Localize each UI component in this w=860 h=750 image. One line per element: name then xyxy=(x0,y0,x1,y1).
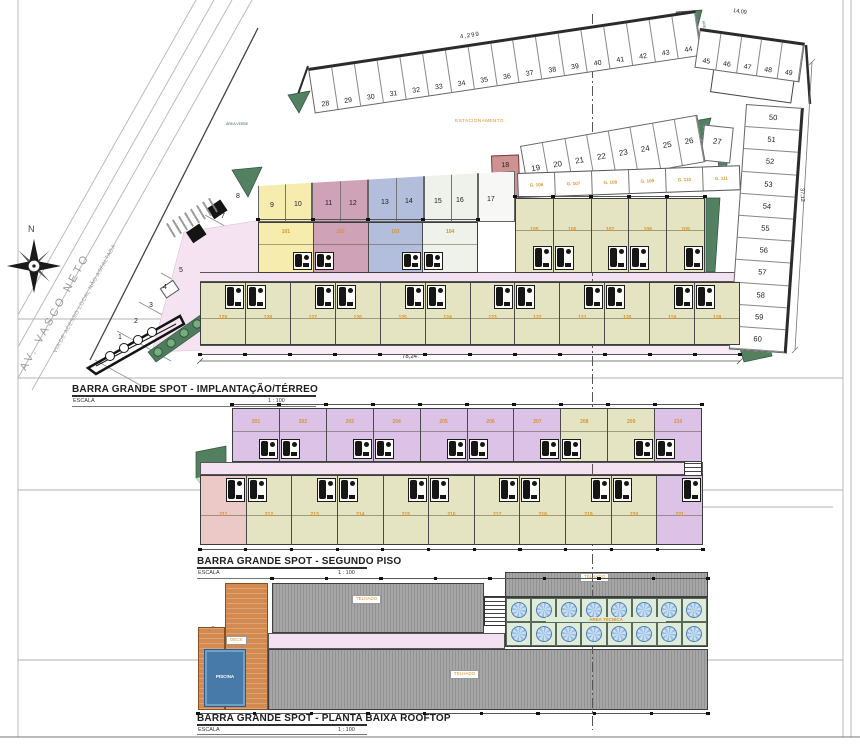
tick xyxy=(310,712,313,715)
tick xyxy=(427,548,430,551)
lot-10: 10 xyxy=(294,201,302,208)
tick xyxy=(423,353,426,356)
unit-number: 105 xyxy=(516,227,553,233)
tick xyxy=(476,218,479,221)
tick xyxy=(603,353,606,356)
tick xyxy=(627,195,630,198)
tick xyxy=(473,548,476,551)
lot-5: 5 xyxy=(179,267,183,274)
dim-ticks xyxy=(232,404,702,405)
bed-icon xyxy=(608,287,615,306)
tick xyxy=(593,712,596,715)
unit-201: 201 xyxy=(233,409,279,461)
fixture-icon xyxy=(685,288,690,293)
wall-line xyxy=(655,431,701,432)
tick xyxy=(371,403,374,406)
furniture-icon xyxy=(606,285,625,309)
bed-icon xyxy=(295,254,302,267)
roof-label-2: TELHADO xyxy=(450,670,479,679)
fan-icon xyxy=(661,626,677,642)
garage-cell: G. 110 xyxy=(665,168,703,192)
furniture-icon xyxy=(248,478,267,502)
fixture-icon xyxy=(693,481,698,486)
unit-212: 212 xyxy=(246,476,292,544)
fixture-icon xyxy=(667,442,672,447)
bed-icon xyxy=(586,287,593,306)
unit-127: 127 xyxy=(290,283,335,344)
plan3-title: BARRA GRANDE SPOT - PLANTA BAIXA ROOFTOP xyxy=(197,713,451,724)
fixture-icon xyxy=(550,452,556,456)
tick xyxy=(650,712,653,715)
furniture-icon xyxy=(674,285,693,309)
tick xyxy=(700,403,703,406)
unit-208: 208 xyxy=(560,409,607,461)
unit-121: 121 xyxy=(559,283,604,344)
furniture-icon xyxy=(555,246,574,270)
bed-icon xyxy=(426,254,433,267)
unit-number: 103 xyxy=(369,229,423,235)
unit-number: 204 xyxy=(374,419,420,425)
unit-218: 218 xyxy=(519,476,565,544)
bed-icon xyxy=(523,480,530,499)
unit-102: 102 xyxy=(313,223,368,272)
unit-number: 119 xyxy=(650,315,694,321)
unit-125: 125 xyxy=(380,283,425,344)
unit-number: 101 xyxy=(259,229,313,235)
lot-27: 27 xyxy=(700,125,734,164)
unit-number: 211 xyxy=(201,512,246,518)
units-second-lower: 211212213214215216217218219220221 xyxy=(200,475,703,545)
compass-rose xyxy=(6,238,62,294)
garage-label: G. 108 xyxy=(604,180,618,185)
bed-icon xyxy=(684,480,691,499)
lot-number: 47 xyxy=(743,63,752,74)
tick xyxy=(421,218,424,221)
fixture-icon xyxy=(291,452,297,456)
lot-16: 16 xyxy=(456,197,464,204)
drawing-sheet: N AV. VASCO NETO VIA DE ACESSO LOCAL NÃO… xyxy=(0,0,860,750)
green-area-label-1: ÁREA VERDE xyxy=(226,122,248,126)
tick xyxy=(366,712,369,715)
unit-124: 124 xyxy=(425,283,470,344)
furniture-icon xyxy=(281,439,300,459)
bed-icon xyxy=(432,480,439,499)
lot-number: 30 xyxy=(367,93,376,104)
furniture-icon xyxy=(259,439,278,459)
lot-block xyxy=(312,171,368,222)
lot-number: 50 xyxy=(769,113,778,123)
tick xyxy=(513,195,516,198)
unit-209: 209 xyxy=(607,409,654,461)
unit-number: 124 xyxy=(426,315,470,321)
tick xyxy=(543,577,546,580)
unit-107: 107 xyxy=(591,199,629,272)
furniture-icon xyxy=(499,478,518,502)
fixture-icon xyxy=(364,442,369,447)
fixture-icon xyxy=(510,481,515,486)
fixture-icon xyxy=(303,263,309,267)
fixture-icon xyxy=(292,442,297,447)
fixture-icon xyxy=(412,263,418,267)
tick xyxy=(324,403,327,406)
wall-line xyxy=(608,431,654,432)
fixture-icon xyxy=(258,288,263,293)
lot-number: 59 xyxy=(755,312,764,322)
unit-number: 104 xyxy=(423,229,477,235)
lot-number: 38 xyxy=(548,66,557,77)
furniture-icon xyxy=(521,478,540,502)
fixture-icon xyxy=(694,263,700,267)
tick xyxy=(366,218,369,221)
stair-rooftop xyxy=(484,596,506,626)
bed-icon xyxy=(496,287,503,306)
tick xyxy=(738,353,741,356)
fixture-icon xyxy=(258,495,264,499)
furniture-icon xyxy=(430,478,449,502)
lot-7: 7 xyxy=(221,213,225,220)
unit-number: 208 xyxy=(561,419,607,425)
lot-13: 13 xyxy=(381,199,389,206)
garage-label: G. 111 xyxy=(715,176,728,181)
furniture-icon xyxy=(696,285,715,309)
furniture-icon xyxy=(516,285,535,309)
unit-number: 102 xyxy=(314,229,368,235)
tick xyxy=(551,195,554,198)
unit-214: 214 xyxy=(337,476,383,544)
unit-number: 107 xyxy=(592,227,629,233)
lot-number: 48 xyxy=(763,66,772,77)
lot-number: 31 xyxy=(389,90,398,101)
condenser-cell xyxy=(632,622,657,646)
dimension-line-bottom xyxy=(197,358,743,364)
furniture-icon xyxy=(225,285,244,309)
wall-line xyxy=(259,244,313,245)
compass-north-label: N xyxy=(28,224,35,234)
parking-area-label: ESTACIONAMENTO xyxy=(455,119,504,124)
fixture-icon xyxy=(544,249,549,254)
fixture-icon xyxy=(326,255,331,260)
wall-line xyxy=(423,244,477,245)
wall-line xyxy=(468,431,514,432)
condenser-cell xyxy=(657,622,682,646)
bed-icon xyxy=(317,287,324,306)
fan-icon xyxy=(611,626,627,642)
boundary-connector xyxy=(806,45,810,104)
bed-icon xyxy=(632,248,639,267)
bed-icon xyxy=(564,441,571,456)
lot-12: 12 xyxy=(349,200,357,207)
fixture-icon xyxy=(235,302,241,306)
unit-219: 219 xyxy=(565,476,611,544)
fixture-icon xyxy=(257,302,263,306)
fixture-icon xyxy=(347,302,353,306)
tick xyxy=(480,712,483,715)
tick xyxy=(488,577,491,580)
unit-number: 207 xyxy=(514,419,560,425)
fixture-icon xyxy=(623,495,629,499)
unit-128: 128 xyxy=(245,283,290,344)
bed-icon xyxy=(557,248,564,267)
unit-202: 202 xyxy=(279,409,326,461)
condenser-cell xyxy=(682,622,707,646)
tick xyxy=(288,353,291,356)
tick xyxy=(244,548,247,551)
tick xyxy=(701,548,704,551)
tick xyxy=(665,195,668,198)
tick xyxy=(243,353,246,356)
unit-number: 219 xyxy=(566,512,611,518)
tick xyxy=(559,403,562,406)
lot-1: 1 xyxy=(118,334,122,341)
unit-213: 213 xyxy=(291,476,337,544)
plan1-escala-label: ESCALA xyxy=(73,398,95,404)
fixture-icon xyxy=(415,302,421,306)
fixture-icon xyxy=(327,495,333,499)
unit-101: 101 xyxy=(259,223,313,272)
wall-line xyxy=(374,431,420,432)
wall-line xyxy=(561,431,607,432)
fixture-icon xyxy=(440,495,446,499)
unit-211: 211 xyxy=(201,476,246,544)
units-ground-upper: 105106107108109 xyxy=(515,198,705,273)
unit-118: 118 xyxy=(694,283,739,344)
fixture-icon xyxy=(419,481,424,486)
furniture-icon xyxy=(447,439,466,459)
garage-cell: G. 108 xyxy=(591,170,629,194)
tick xyxy=(653,403,656,406)
unit-number: 128 xyxy=(246,315,290,321)
garage-label: G. 110 xyxy=(678,177,691,182)
unit-number: 212 xyxy=(247,512,292,518)
bed-icon xyxy=(658,441,665,456)
units-ground-colored: 101102103104 xyxy=(258,222,478,273)
unit-number: 120 xyxy=(605,315,649,321)
lot-15: 15 xyxy=(434,198,442,205)
unit-207: 207 xyxy=(513,409,560,461)
roof-lower xyxy=(268,649,708,710)
bed-icon xyxy=(535,248,542,267)
fixture-icon xyxy=(551,442,556,447)
condenser-cell xyxy=(506,598,531,622)
furniture-icon xyxy=(293,252,312,270)
dim-ticks xyxy=(198,713,708,714)
lot-divider xyxy=(340,172,341,221)
lot-number: 34 xyxy=(457,80,466,91)
fixture-icon xyxy=(326,288,331,293)
lot-number: 44 xyxy=(684,46,693,57)
fan-icon xyxy=(686,626,702,642)
lot-block xyxy=(258,171,312,222)
fixture-icon xyxy=(304,255,309,260)
furniture-icon xyxy=(353,439,372,459)
unit-number: 108 xyxy=(629,227,666,233)
fixture-icon xyxy=(458,442,463,447)
fixture-icon xyxy=(645,442,650,447)
pool-label: PISCINA xyxy=(204,674,246,679)
tick xyxy=(381,548,384,551)
tick xyxy=(693,353,696,356)
lot-number: 36 xyxy=(503,73,512,84)
fixture-icon xyxy=(259,481,264,486)
unit-204: 204 xyxy=(373,409,420,461)
lot-number: 29 xyxy=(344,97,353,108)
fixture-icon xyxy=(363,452,369,456)
lot-number: 35 xyxy=(480,77,489,88)
unit-215: 215 xyxy=(383,476,429,544)
lot-14: 14 xyxy=(405,198,413,205)
fixture-icon xyxy=(385,452,391,456)
tick xyxy=(379,577,382,580)
furniture-icon xyxy=(634,439,653,459)
unit-number: 209 xyxy=(608,419,654,425)
dim-ticks xyxy=(272,578,708,579)
lot-number: 22 xyxy=(596,151,606,161)
bed-icon xyxy=(249,287,256,306)
tick xyxy=(513,353,516,356)
unit-number: 206 xyxy=(468,419,514,425)
wall-line xyxy=(233,431,279,432)
tick xyxy=(589,195,592,198)
fixture-icon xyxy=(532,481,537,486)
lot-number: 39 xyxy=(571,63,580,74)
condenser-cell xyxy=(581,622,606,646)
unit-104: 104 xyxy=(422,223,477,272)
bed-icon xyxy=(593,480,600,499)
fan-icon xyxy=(636,602,652,618)
tick xyxy=(311,218,314,221)
fixture-icon xyxy=(527,288,532,293)
unit-number: 106 xyxy=(554,227,591,233)
fan-icon xyxy=(586,626,602,642)
unit-203: 203 xyxy=(326,409,373,461)
deck-label: DECK xyxy=(226,636,247,645)
fixture-icon xyxy=(236,495,242,499)
bed-icon xyxy=(410,480,417,499)
unit-205: 205 xyxy=(420,409,467,461)
tick xyxy=(597,577,600,580)
tick xyxy=(198,353,201,356)
fixture-icon xyxy=(434,263,440,267)
garage-cell: G. 111 xyxy=(702,166,740,190)
furniture-icon xyxy=(684,246,703,270)
tick xyxy=(270,577,273,580)
furniture-icon xyxy=(315,252,334,270)
unit-120: 120 xyxy=(604,283,649,344)
lot-number: 41 xyxy=(616,56,625,67)
fixture-icon xyxy=(707,288,712,293)
fan-icon xyxy=(511,626,527,642)
tick xyxy=(198,548,201,551)
tick xyxy=(706,712,709,715)
unit-number: 217 xyxy=(475,512,520,518)
furniture-icon xyxy=(494,285,513,309)
tick xyxy=(423,712,426,715)
lot-number: 40 xyxy=(593,60,602,71)
fixture-icon xyxy=(666,452,672,456)
lot-number: 24 xyxy=(640,143,650,153)
furniture-icon xyxy=(562,439,581,459)
lot-8: 8 xyxy=(236,193,240,200)
unit-119: 119 xyxy=(649,283,694,344)
plan1-title-rule xyxy=(72,395,316,397)
unit-126: 126 xyxy=(335,283,380,344)
unit-number: 203 xyxy=(327,419,373,425)
fixture-icon xyxy=(543,263,549,267)
garage-label: G. 109 xyxy=(641,178,655,183)
dim-ticks xyxy=(200,354,740,355)
lot-divider xyxy=(396,172,397,221)
unit-109: 109 xyxy=(666,199,704,272)
fan-icon xyxy=(661,602,677,618)
tick xyxy=(336,548,339,551)
unit-220: 220 xyxy=(611,476,657,544)
lot-number: 23 xyxy=(618,147,628,157)
dim-ticks xyxy=(200,549,703,550)
plan2-escala-label: ESCALA xyxy=(198,570,220,576)
bed-icon xyxy=(250,480,257,499)
furniture-icon xyxy=(656,439,675,459)
bed-icon xyxy=(501,480,508,499)
furniture-icon xyxy=(315,285,334,309)
plan1-escala-rule xyxy=(72,406,316,407)
lot-number: 42 xyxy=(639,53,648,64)
tech-area-label: ÁREA TÉCNICA xyxy=(546,617,666,622)
bed-icon xyxy=(615,480,622,499)
bed-icon xyxy=(518,287,525,306)
bed-icon xyxy=(227,287,234,306)
lot-4: 4 xyxy=(163,284,167,291)
tick xyxy=(606,403,609,406)
bed-icon xyxy=(542,441,549,456)
fixture-icon xyxy=(325,263,331,267)
lot-49: 49 xyxy=(778,43,804,82)
wall-line xyxy=(369,244,423,245)
tick xyxy=(564,548,567,551)
fixture-icon xyxy=(505,288,510,293)
unit-number: 123 xyxy=(471,315,515,321)
bed-icon xyxy=(319,480,326,499)
furniture-icon xyxy=(317,478,336,502)
dim-right: 37,12 xyxy=(799,188,806,202)
unit-108: 108 xyxy=(628,199,666,272)
roof-label-1: TELHADO xyxy=(352,595,381,604)
condenser-cell xyxy=(506,622,531,646)
tick xyxy=(290,548,293,551)
bed-icon xyxy=(676,287,683,306)
bed-icon xyxy=(404,254,411,267)
furniture-icon xyxy=(375,439,394,459)
fixture-icon xyxy=(594,302,600,306)
fixture-icon xyxy=(435,255,440,260)
fixture-icon xyxy=(480,442,485,447)
fixture-icon xyxy=(531,495,537,499)
tick xyxy=(536,712,539,715)
bed-icon xyxy=(377,441,384,456)
unit-number: 214 xyxy=(338,512,383,518)
lot-number: 26 xyxy=(684,135,694,145)
plan1-title: BARRA GRANDE SPOT - IMPLANTAÇÃO/TÉRREO xyxy=(72,384,318,395)
lot-11: 11 xyxy=(325,200,332,207)
tick xyxy=(230,403,233,406)
condenser-cell xyxy=(531,622,556,646)
plan3-escala-label: ESCALA xyxy=(198,727,220,733)
lot-number: 54 xyxy=(762,201,771,211)
fixture-icon xyxy=(566,249,571,254)
tick xyxy=(610,548,613,551)
tick xyxy=(418,403,421,406)
furniture-icon xyxy=(608,246,627,270)
bed-icon xyxy=(355,441,362,456)
